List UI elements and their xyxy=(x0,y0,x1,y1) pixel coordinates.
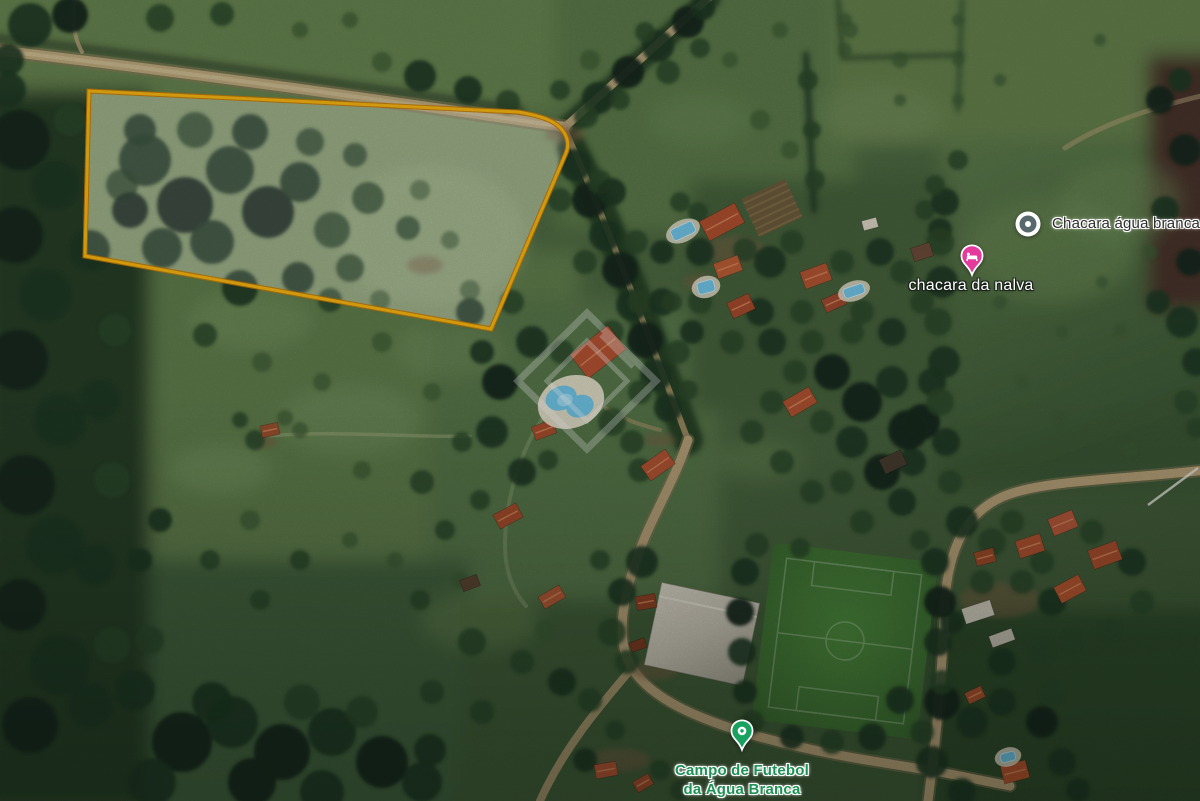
marker-chacara-da-nalva[interactable] xyxy=(959,244,985,277)
label-campo-line2: da Água Branca xyxy=(632,780,852,799)
marker-chacara-agua-branca[interactable] xyxy=(1013,209,1043,239)
park-pin-icon xyxy=(729,719,755,752)
satellite-map-canvas[interactable]: Chacara água branca chacara da nalva Cam… xyxy=(0,0,1200,801)
marker-campo-de-futebol[interactable] xyxy=(729,719,755,752)
satellite-imagery xyxy=(0,0,1200,801)
label-campo-line1: Campo de Futebol xyxy=(632,761,852,780)
label-chacara-da-nalva: chacara da nalva xyxy=(861,277,1081,295)
label-campo-de-futebol: Campo de Futebol da Água Branca xyxy=(632,761,852,799)
poi-dot-icon xyxy=(1013,209,1043,239)
label-chacara-agua-branca: Chacara água branca xyxy=(1052,215,1200,232)
vignette xyxy=(0,400,1200,801)
lodging-pin-icon xyxy=(959,244,985,277)
